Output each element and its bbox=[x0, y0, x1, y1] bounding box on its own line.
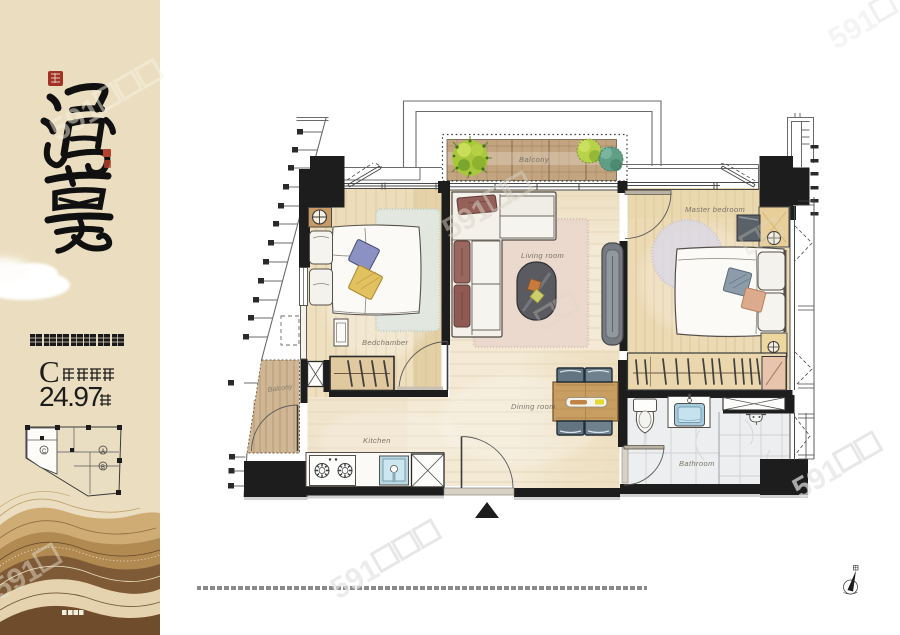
svg-text:A: A bbox=[101, 449, 105, 455]
svg-text:C: C bbox=[42, 449, 47, 455]
svg-text:Balcony: Balcony bbox=[519, 155, 550, 164]
svg-text:Bedchamber: Bedchamber bbox=[362, 338, 409, 347]
svg-text:Living room: Living room bbox=[521, 251, 564, 260]
svg-text:Bathroom: Bathroom bbox=[679, 459, 715, 468]
svg-text:Kitchen: Kitchen bbox=[363, 436, 391, 445]
svg-text:B: B bbox=[101, 465, 105, 471]
svg-text:Dining room: Dining room bbox=[511, 402, 556, 411]
svg-text:Master bedroom: Master bedroom bbox=[685, 205, 745, 214]
svg-text:24.97: 24.97 bbox=[39, 381, 102, 412]
